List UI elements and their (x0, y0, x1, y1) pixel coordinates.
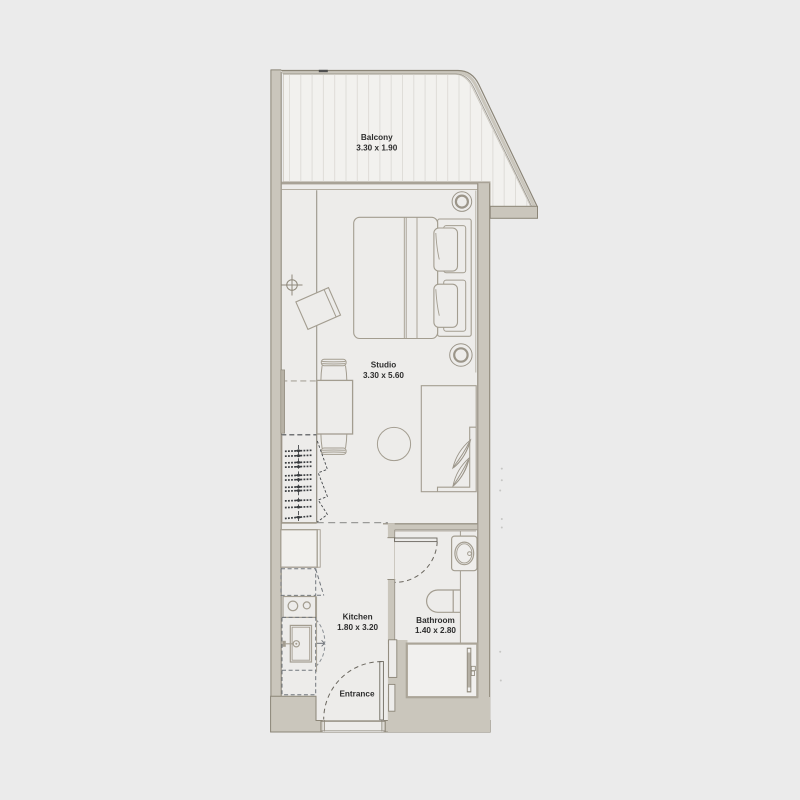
svg-text:Entrance: Entrance (339, 689, 374, 698)
svg-text:Bathroom: Bathroom (416, 616, 455, 625)
svg-text:Kitchen: Kitchen (343, 613, 373, 622)
svg-text:Studio: Studio (371, 361, 396, 370)
svg-text:1.80 x 3.20: 1.80 x 3.20 (337, 623, 378, 632)
svg-text:3.30 x 5.60: 3.30 x 5.60 (363, 371, 404, 380)
svg-text:1.40 x 2.80: 1.40 x 2.80 (415, 626, 456, 635)
svg-text:Balcony: Balcony (361, 133, 393, 142)
svg-text:3.30 x 1.90: 3.30 x 1.90 (356, 143, 397, 152)
